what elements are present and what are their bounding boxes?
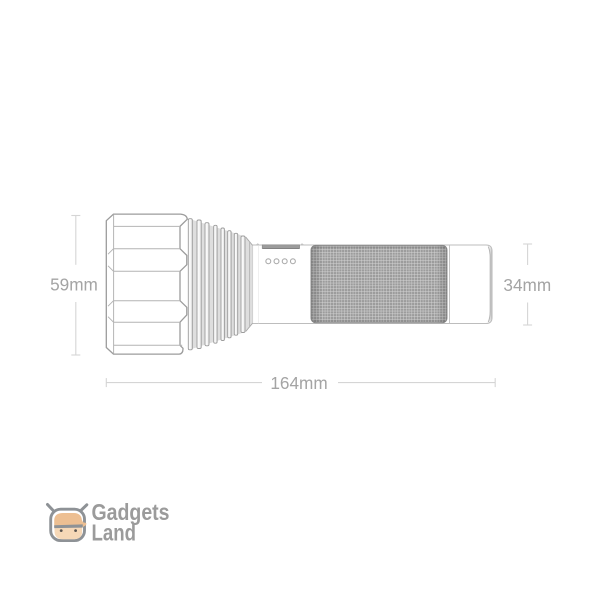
svg-text:Land: Land [92, 519, 137, 545]
svg-text:59mm: 59mm [50, 275, 98, 295]
svg-text:34mm: 34mm [503, 275, 551, 295]
svg-text:164mm: 164mm [270, 373, 327, 393]
